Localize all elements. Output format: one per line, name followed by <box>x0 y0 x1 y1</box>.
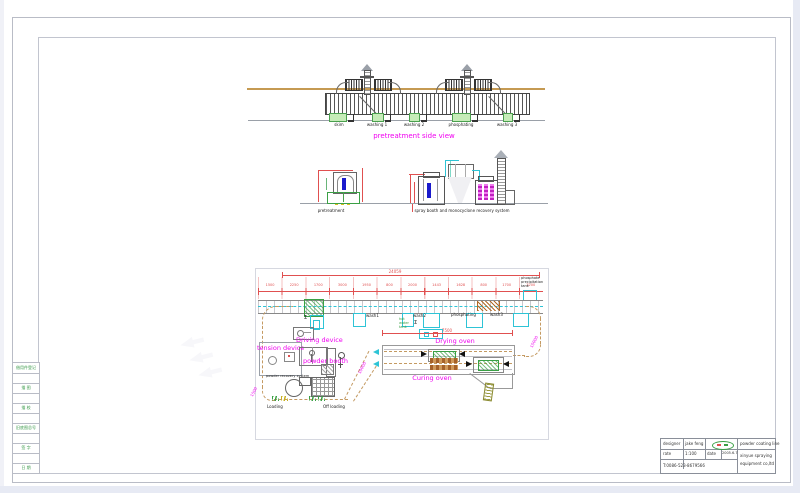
plan-overall-dim: 24059 <box>389 270 402 274</box>
logo-mark-red <box>717 444 721 446</box>
elevation-left-label: pretreatment <box>318 209 345 213</box>
dim-line <box>412 204 413 212</box>
exhaust-stack <box>364 70 371 95</box>
dim-line <box>318 171 319 202</box>
revision-strip: 借用件登记 描 图 描 校 旧底图总号 签 字 日 期 <box>12 362 40 474</box>
tank-washing1 <box>372 113 384 122</box>
dim-line <box>410 175 411 203</box>
cyclone-inner-line <box>455 164 456 177</box>
loop-right-side <box>540 318 541 344</box>
project-title: powder coating line <box>740 442 780 446</box>
exhaust-fan-unit <box>344 64 392 94</box>
company-name-line1: xinyue spraying <box>740 454 772 458</box>
loop-arc-top-left <box>262 306 293 327</box>
rate-label: rate <box>663 452 671 456</box>
curing-burner-core <box>478 360 499 371</box>
plan-station-wash1: wash1 <box>366 314 379 318</box>
pretreatment-tunnel <box>325 93 530 115</box>
pump-icon <box>472 114 478 122</box>
dim-tick <box>512 330 513 336</box>
off-loading-label: Off loading <box>323 405 345 409</box>
burner-arrow-icon <box>503 361 509 367</box>
hanger-mark <box>281 396 288 401</box>
dim-line <box>318 170 353 171</box>
title-block: designer jake feng rate 1:100 date 2005.… <box>660 438 776 474</box>
side-view-ground-line <box>248 120 545 121</box>
booth-inner-line <box>437 179 438 201</box>
stack-base-box <box>505 190 515 205</box>
designer-name: jake feng <box>685 442 703 446</box>
filter-cartridge <box>478 184 482 200</box>
recovery-fan-outlet <box>299 377 311 386</box>
sigma-mark: Σ <box>414 321 417 326</box>
exhaust-fan-unit <box>444 64 492 94</box>
heater-bar <box>430 358 458 363</box>
oven-ext-right <box>512 373 513 389</box>
pump-icon <box>385 114 391 122</box>
cyclone-inner-line <box>465 164 466 177</box>
hanger-icon <box>309 350 315 356</box>
plan-overall-dim-line <box>282 275 540 276</box>
station-label-skim: skim <box>334 123 343 127</box>
burner-arrow-icon <box>459 351 465 357</box>
station-label-washing1: washing 1 <box>367 123 387 127</box>
driving-detail-line <box>304 332 311 333</box>
duct-line-cyan <box>445 160 446 177</box>
stack-arrow-icon <box>494 150 508 158</box>
stack-collar <box>360 76 374 78</box>
right-edge-strip <box>793 0 800 493</box>
station-label-phosphating: phosphating <box>449 123 474 127</box>
burner-arrow-icon <box>421 351 427 357</box>
designer-label: designer <box>663 442 680 446</box>
workpiece-bar <box>427 183 431 198</box>
tank-phosphating <box>452 113 471 122</box>
pump-icon <box>421 114 427 122</box>
stack-collar <box>460 76 474 78</box>
dim-line <box>414 182 415 203</box>
hanger-mark <box>309 396 316 401</box>
dim-line <box>362 168 363 202</box>
plan-station-phosphating: phosphating <box>451 313 476 317</box>
tank-skim <box>329 113 347 122</box>
plan-tank <box>353 313 366 327</box>
phosphate-note: phosphate precipitation tank <box>521 276 544 288</box>
logo-mark-green <box>724 444 728 446</box>
station-label-washing2: washing 2 <box>404 123 424 127</box>
rev-cell: 日 期 <box>13 463 39 473</box>
date-label: date <box>707 452 716 456</box>
rate-value: 1:100 <box>685 452 697 456</box>
heater-bar <box>430 365 458 370</box>
hanger-mark <box>272 396 279 401</box>
sigma-mark: Σ <box>304 316 307 321</box>
recovery-filter-grid <box>311 377 335 397</box>
drying-oven-label: Drying oven <box>435 338 475 345</box>
hanger-mark <box>318 396 325 401</box>
side-view-title: pretreatment side view <box>373 133 455 140</box>
plan-segment-dim-line <box>258 291 543 292</box>
pretreat-tank-divider <box>343 192 344 202</box>
filter-unit-cap <box>478 176 494 182</box>
tension-wheel-icon <box>268 356 277 365</box>
filter-cartridge <box>490 184 494 200</box>
bottom-edge-strip <box>0 486 800 493</box>
tank-washing2 <box>409 113 420 122</box>
driving-device-label: Driving device <box>296 337 343 344</box>
tension-device-label: tension device <box>257 345 304 352</box>
drain-dashes <box>335 204 351 205</box>
filter-cartridge <box>484 184 488 200</box>
burner-arrow-icon <box>466 361 472 367</box>
left-edge-strip <box>0 0 4 493</box>
plan-station-wash3: wash3 <box>490 313 503 317</box>
dim-tick <box>382 330 383 336</box>
tb-vline <box>737 439 738 473</box>
conveyor-centerline <box>258 306 543 307</box>
curing-oven-label: Curing oven <box>412 375 451 382</box>
tb-hline <box>737 449 775 450</box>
pump-icon <box>348 114 354 122</box>
hot-water-tank-note: hot water tank <box>399 317 413 329</box>
oven-inlet-arrow-icon <box>373 349 379 355</box>
oven-inlet-arrow-icon <box>373 361 379 367</box>
workpiece-bar <box>342 178 346 190</box>
station-label-washing3: washing 3 <box>497 123 517 127</box>
phone-number: T:0086-523-8679566 <box>663 464 705 468</box>
cyclone-top-box <box>448 164 474 179</box>
date-value: 2005.6.7 <box>722 452 738 456</box>
elevation-right-label: spray booth and monocyclone recovery sys… <box>414 209 509 213</box>
pump-icon <box>514 114 520 122</box>
tank-washing3 <box>503 113 513 122</box>
booth-inner-line <box>423 179 424 201</box>
spray-booth-cap <box>423 172 440 178</box>
duct-hatch-box <box>321 364 334 375</box>
tension-indicator-box <box>284 352 295 362</box>
cad-drawing-canvas: 借用件登记 描 图 描 校 旧底图总号 签 字 日 期 <box>0 0 800 493</box>
red-dot <box>288 355 290 357</box>
oven-dim-line <box>382 333 513 334</box>
oven-dim: 7500 <box>442 329 452 333</box>
heated-section <box>477 301 500 311</box>
tb-hline <box>661 459 737 460</box>
powder-recovery-label: powder recovery system <box>266 374 296 378</box>
dim-line-green <box>326 178 327 190</box>
duct-line-cyan <box>445 160 459 161</box>
plan-station-wash2: wash2 <box>413 314 426 318</box>
company-logo <box>712 441 734 450</box>
exhaust-stack <box>464 70 471 95</box>
loading-label: Loading <box>267 405 283 409</box>
company-name-line2: equipment co,ltd <box>740 462 774 466</box>
